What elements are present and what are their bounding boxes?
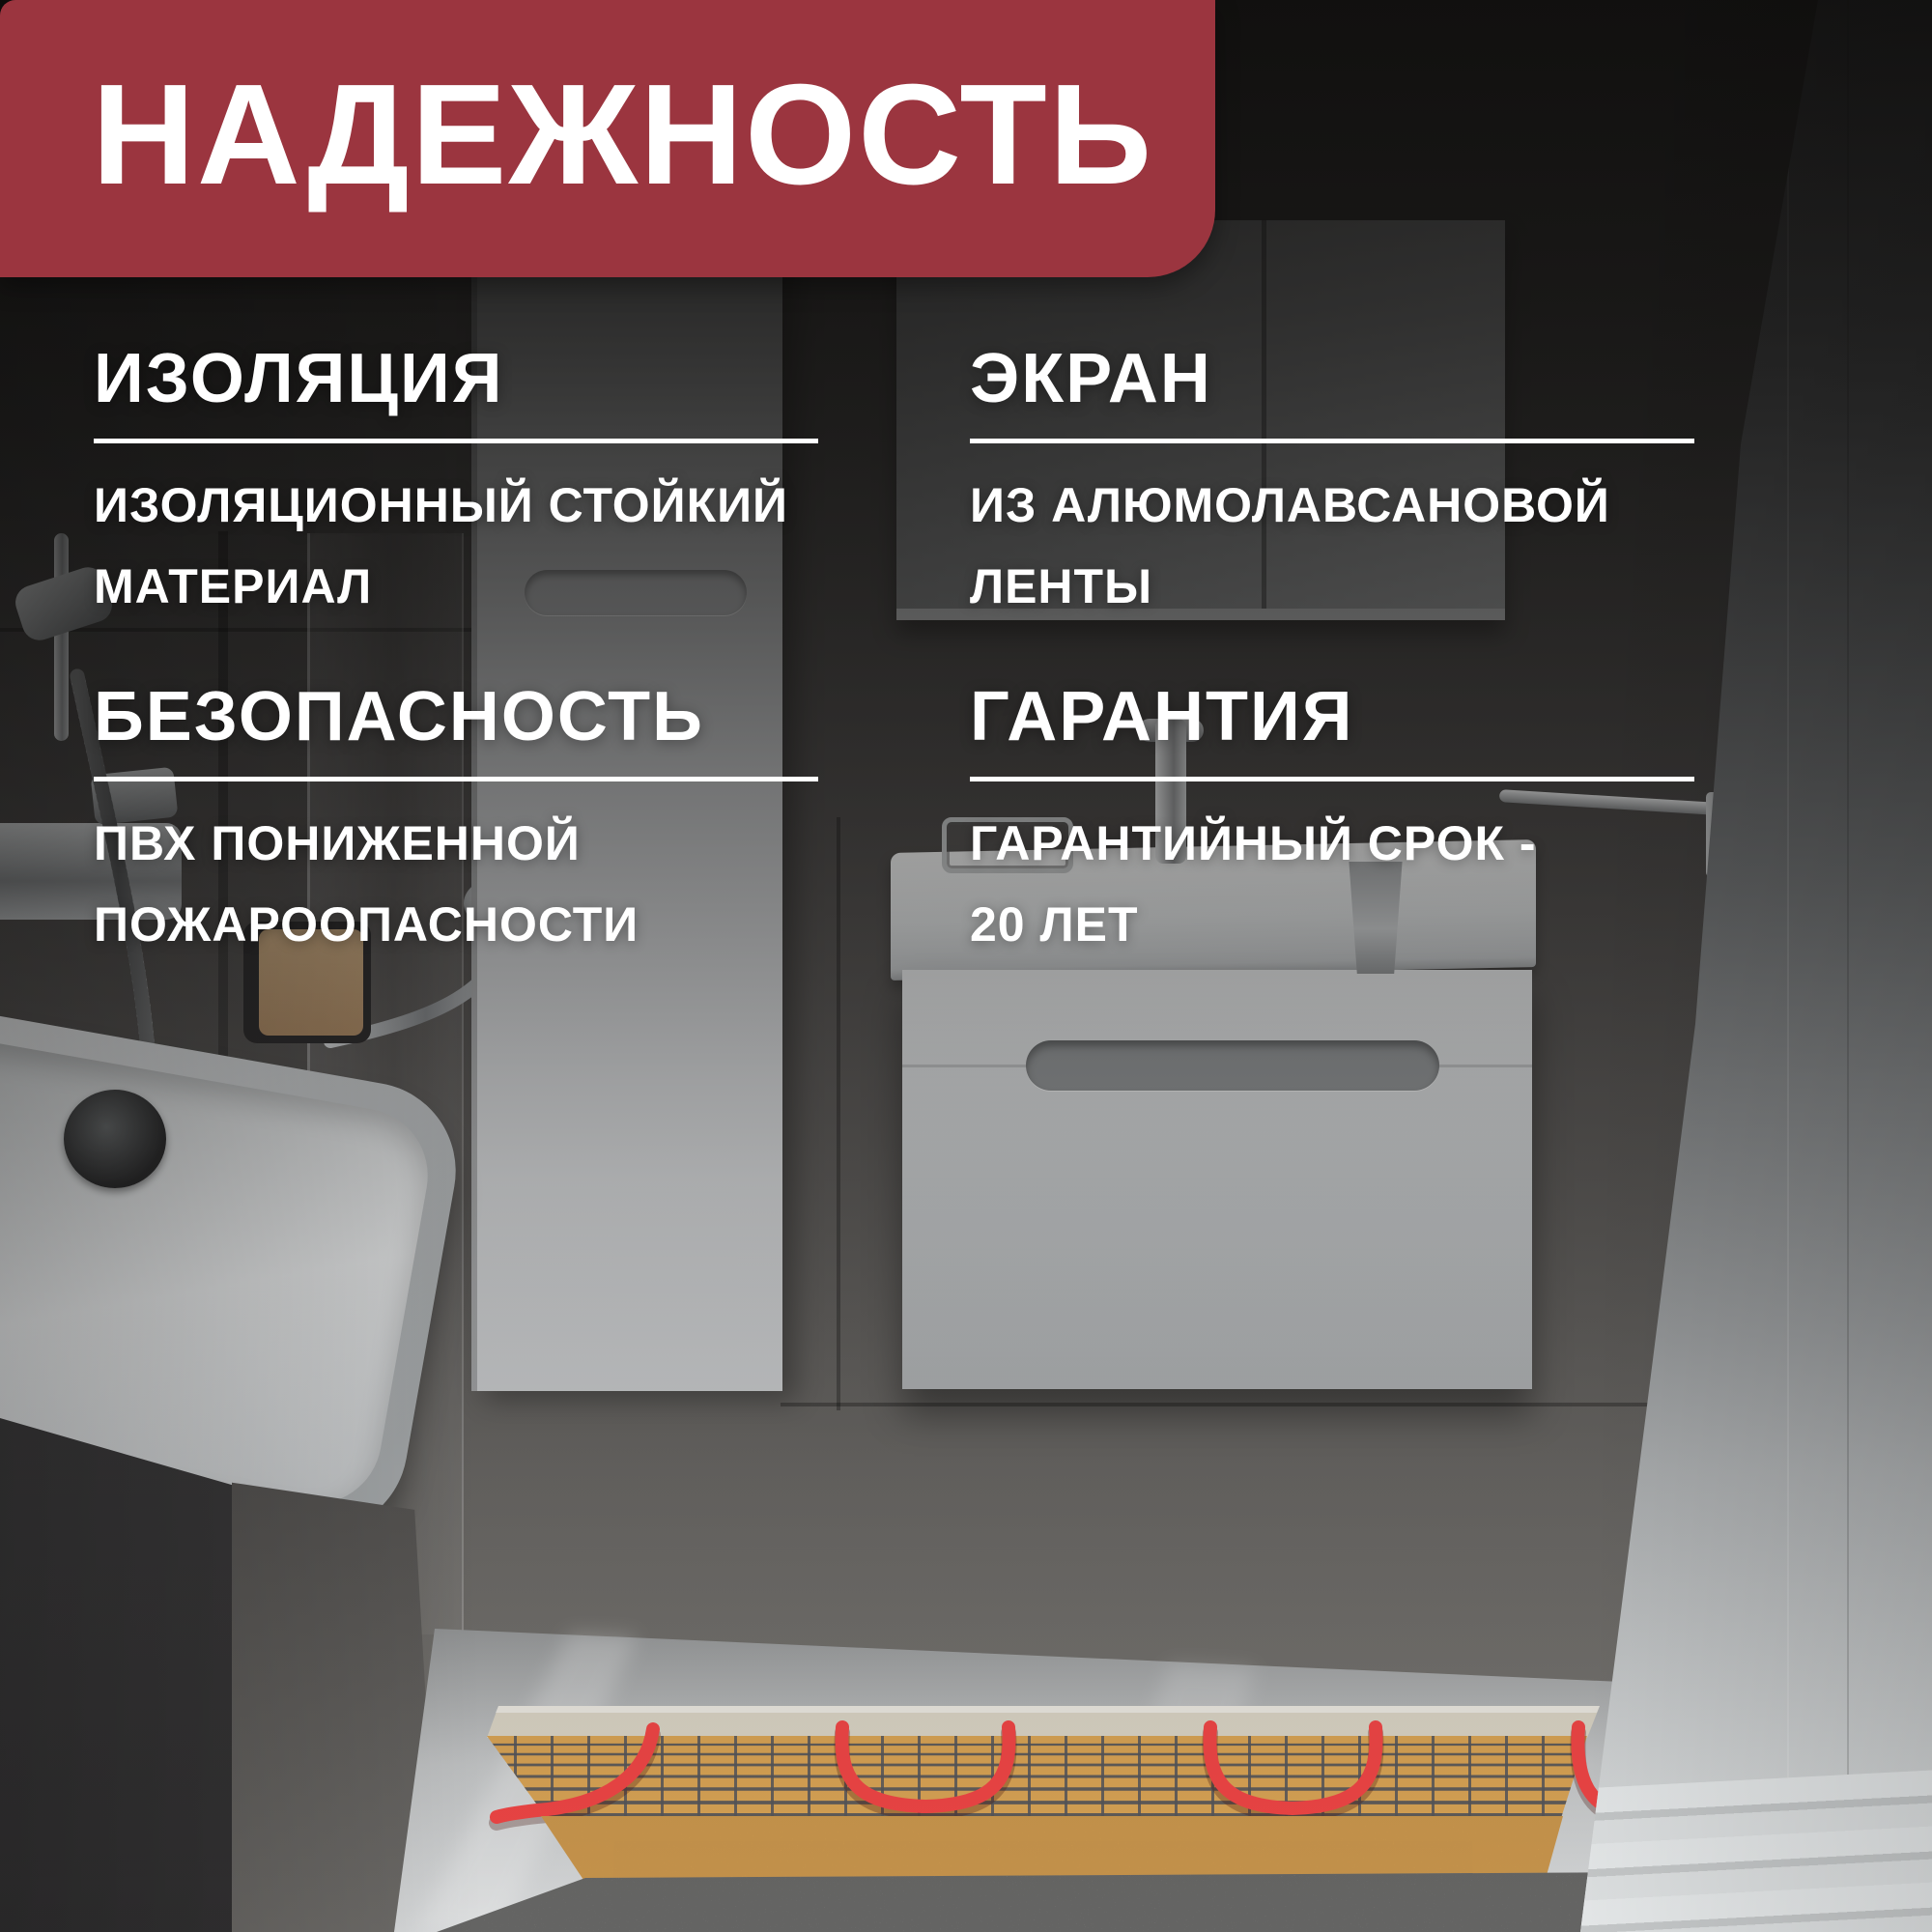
- feature-insulation: ИЗОЛЯЦИЯ ИЗОЛЯЦИОННЫЙ СТОЙКИЙ МАТЕРИАЛ: [94, 344, 895, 627]
- feature-title: БЕЗОПАСНОСТЬ: [94, 682, 895, 752]
- divider-line: [970, 777, 1694, 781]
- divider-line: [94, 439, 818, 443]
- feature-safety: БЕЗОПАСНОСТЬ ПВХ ПОНИЖЕННОЙ ПОЖАРООПАСНО…: [94, 682, 895, 965]
- infographic-page: НАДЕЖНОСТЬ ИЗОЛЯЦИЯ ИЗОЛЯЦИОННЫЙ СТОЙКИЙ…: [0, 0, 1932, 1932]
- feature-description: ИЗ АЛЮМОЛАВСАНОВОЙ ЛЕНТЫ: [970, 465, 1772, 627]
- feature-description: ПВХ ПОНИЖЕННОЙ ПОЖАРООПАСНОСТИ: [94, 803, 895, 965]
- feature-warranty: ГАРАНТИЯ ГАРАНТИЙНЫЙ СРОК - 20 ЛЕТ: [970, 682, 1772, 965]
- feature-description: ГАРАНТИЙНЫЙ СРОК - 20 ЛЕТ: [970, 803, 1772, 965]
- badge-reliability: НАДЕЖНОСТЬ: [0, 0, 1215, 277]
- divider-line: [970, 439, 1694, 443]
- badge-title: НАДЕЖНОСТЬ: [92, 62, 1153, 209]
- divider-line: [94, 777, 818, 781]
- bathroom-scene: [0, 0, 1932, 1932]
- feature-title: ИЗОЛЯЦИЯ: [94, 344, 895, 413]
- feature-description: ИЗОЛЯЦИОННЫЙ СТОЙКИЙ МАТЕРИАЛ: [94, 465, 895, 627]
- feature-title: ЭКРАН: [970, 344, 1772, 413]
- scene-vignette-overlay: [0, 0, 1932, 1932]
- feature-title: ГАРАНТИЯ: [970, 682, 1772, 752]
- feature-shield: ЭКРАН ИЗ АЛЮМОЛАВСАНОВОЙ ЛЕНТЫ: [970, 344, 1772, 627]
